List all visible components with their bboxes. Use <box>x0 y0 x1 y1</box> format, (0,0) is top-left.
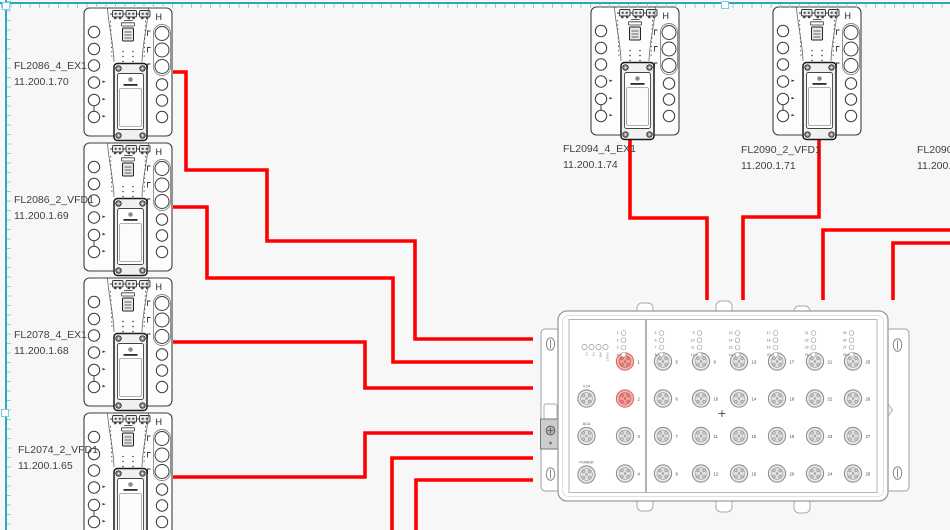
wire-1[interactable] <box>173 72 533 339</box>
diagram-canvas[interactable]: HFL2086_4_EX111.200.1.70HFL2086_2_VFD111… <box>0 0 950 530</box>
svg-text:H: H <box>845 11 852 21</box>
m12-port-19[interactable] <box>768 427 785 444</box>
port-led <box>621 345 626 350</box>
port-number: 22 <box>828 396 833 401</box>
m12-port-27[interactable] <box>844 427 861 444</box>
device-label-fl2078_4_ex1[interactable]: FL2078_4_EX111.200.1.68 <box>14 328 87 359</box>
device-fl2086_2_vfd1[interactable]: H <box>83 142 173 287</box>
port-led <box>811 331 816 336</box>
port-led <box>659 338 664 343</box>
port-number: 18 <box>790 396 795 401</box>
device-ip: 11.200.1.71 <box>741 160 796 172</box>
m12-port-12[interactable] <box>692 465 709 482</box>
center-marker: + <box>718 405 726 421</box>
m12-port-16[interactable] <box>730 465 747 482</box>
svg-text:H: H <box>156 282 163 292</box>
svg-text:H: H <box>156 417 163 427</box>
port-number: 20 <box>790 471 795 476</box>
device-artwork: H <box>83 7 173 147</box>
led-number: 13 <box>729 331 733 335</box>
led-number: 24 <box>805 353 809 357</box>
port-led <box>773 352 778 357</box>
m12-port-6[interactable] <box>654 390 671 407</box>
port-led <box>735 331 740 336</box>
m12-port-24[interactable] <box>806 465 823 482</box>
port-led <box>735 345 740 350</box>
port-number: 28 <box>866 471 871 476</box>
device-artwork: H <box>590 6 680 146</box>
led-number: 21 <box>805 331 809 335</box>
device-name: FL2086_2_VFD1 <box>14 194 94 206</box>
port-number: 27 <box>866 434 871 439</box>
svg-text:H: H <box>156 147 163 157</box>
device-ip: 11.200.1.69 <box>14 210 69 222</box>
aux-port-power[interactable] <box>578 466 595 483</box>
m12-port-20[interactable] <box>768 465 785 482</box>
port-number: 11 <box>714 434 719 439</box>
led-number: 28 <box>843 353 847 357</box>
device-ip: 11.200.1. <box>917 160 950 172</box>
led-number: 9 <box>693 331 695 335</box>
device-name: FL2090_4 <box>917 144 950 156</box>
device-artwork: H <box>772 6 862 146</box>
m12-port-4[interactable] <box>616 465 633 482</box>
status-led-p2 <box>589 344 594 349</box>
device-fl2078_4_ex1[interactable]: H <box>83 277 173 422</box>
port-led <box>621 338 626 343</box>
m12-port-2[interactable] <box>616 390 633 407</box>
wire-4[interactable] <box>173 433 533 477</box>
port-led <box>621 331 626 336</box>
led-number: 23 <box>805 346 809 350</box>
port-led <box>773 338 778 343</box>
port-number: 15 <box>752 434 757 439</box>
led-number: 1 <box>617 331 619 335</box>
device-artwork: H <box>83 142 173 282</box>
led-number: 2 <box>617 338 619 342</box>
device-ip: 11.200.1.65 <box>18 460 73 472</box>
aux-port-label: V.24 <box>583 385 590 389</box>
m12-port-23[interactable] <box>806 427 823 444</box>
port-led <box>697 338 702 343</box>
device-ip: 11.200.1.74 <box>563 159 618 171</box>
page-ruler-ticks-left <box>7 1 11 530</box>
led-number: 11 <box>691 346 695 350</box>
port-number: 23 <box>828 434 833 439</box>
device-label-fl2090_4[interactable]: FL2090_411.200.1. <box>917 143 950 174</box>
m12-port-3[interactable] <box>616 427 633 444</box>
port-led <box>849 345 854 350</box>
port-number: 10 <box>714 396 719 401</box>
svg-text:H: H <box>663 11 670 21</box>
status-led-p1 <box>582 344 587 349</box>
port-led <box>811 345 816 350</box>
port-led <box>811 352 816 357</box>
led-number: 8 <box>655 353 657 357</box>
status-led-rm <box>596 344 601 349</box>
port-led <box>849 338 854 343</box>
led-number: 19 <box>767 346 771 350</box>
port-led <box>773 331 778 336</box>
aux-port-v.24[interactable] <box>578 390 595 407</box>
m12-port-18[interactable] <box>768 390 785 407</box>
device-name: FL2074_2_VFD1 <box>18 444 98 456</box>
m12-port-8[interactable] <box>654 465 671 482</box>
led-number: 26 <box>843 338 847 342</box>
device-name: FL2086_4_EX1 <box>14 60 87 72</box>
m12-port-7[interactable] <box>654 427 671 444</box>
led-number: 25 <box>843 331 847 335</box>
aux-port-label: POWER <box>579 461 594 465</box>
port-number: 25 <box>866 359 871 364</box>
device-ip: 11.200.1.68 <box>14 345 69 357</box>
status-led-label: P2 <box>592 353 596 357</box>
device-name: FL2078_4_EX1 <box>14 329 87 341</box>
port-led <box>735 338 740 343</box>
port-number: 17 <box>790 359 795 364</box>
port-number: 21 <box>828 359 833 364</box>
aux-port-label: ACA <box>583 422 591 426</box>
port-led <box>697 345 702 350</box>
ethernet-switch[interactable]: P1P2RMFAULT11223344556677889910101111121… <box>520 288 920 530</box>
port-led <box>659 331 664 336</box>
device-artwork: H <box>83 277 173 417</box>
port-number: 26 <box>866 396 871 401</box>
device-label-fl2086_4_ex1[interactable]: FL2086_4_EX111.200.1.70 <box>14 59 87 90</box>
wire-7[interactable] <box>630 137 707 300</box>
led-number: 27 <box>843 346 847 350</box>
status-led-label: RM <box>599 353 603 358</box>
device-fl2090_2_vfd1[interactable]: H <box>772 6 862 151</box>
device-label-fl2094_4_ex1[interactable]: FL2094_4_EX111.200.1.74 <box>563 142 636 173</box>
m12-port-10[interactable] <box>692 390 709 407</box>
port-number: 19 <box>790 434 795 439</box>
m12-port-22[interactable] <box>806 390 823 407</box>
led-number: 20 <box>767 353 771 357</box>
led-number: 5 <box>655 331 657 335</box>
status-led-fault <box>603 344 608 349</box>
m12-port-11[interactable] <box>692 427 709 444</box>
m12-port-28[interactable] <box>844 465 861 482</box>
led-number: 18 <box>767 338 771 342</box>
led-number: 16 <box>729 353 733 357</box>
port-number: 16 <box>752 471 757 476</box>
device-fl2086_4_ex1[interactable]: H <box>83 7 173 152</box>
status-led-label: FAULT <box>606 353 610 362</box>
port-led <box>735 352 740 357</box>
device-label-fl2090_2_vfd1[interactable]: FL2090_2_VFD111.200.1.71 <box>741 143 821 174</box>
port-led <box>697 352 702 357</box>
port-led <box>773 345 778 350</box>
wire-6[interactable] <box>416 480 533 530</box>
led-number: 6 <box>655 338 657 342</box>
port-number: 14 <box>752 396 757 401</box>
selection-handle-1[interactable] <box>2 2 10 10</box>
device-fl2094_4_ex1[interactable]: H <box>590 6 680 151</box>
device-name: FL2094_4_EX1 <box>563 143 636 155</box>
port-led <box>621 352 626 357</box>
port-led <box>659 345 664 350</box>
m12-port-15[interactable] <box>730 427 747 444</box>
port-led <box>811 338 816 343</box>
led-number: 15 <box>729 346 733 350</box>
svg-text:H: H <box>156 12 163 22</box>
port-number: 24 <box>828 471 833 476</box>
led-number: 3 <box>617 346 619 350</box>
led-number: 7 <box>655 346 657 350</box>
led-number: 17 <box>767 331 771 335</box>
port-led <box>849 352 854 357</box>
wire-3[interactable] <box>173 342 533 388</box>
port-led <box>697 331 702 336</box>
page-ruler-ticks-top <box>1 4 950 8</box>
selection-handle-3[interactable] <box>1 409 9 417</box>
device-label-fl2086_2_vfd1[interactable]: FL2086_2_VFD111.200.1.69 <box>14 193 94 224</box>
port-number: 13 <box>752 359 757 364</box>
device-ip: 11.200.1.70 <box>14 76 69 88</box>
led-number: 14 <box>729 338 733 342</box>
aux-port-aca[interactable] <box>578 427 595 444</box>
m12-port-14[interactable] <box>730 390 747 407</box>
led-number: 22 <box>805 338 809 342</box>
device-label-fl2074_2_vfd1[interactable]: FL2074_2_VFD111.200.1.65 <box>18 443 98 474</box>
selection-handle-2[interactable] <box>721 1 729 9</box>
led-number: 10 <box>691 338 695 342</box>
led-number: 12 <box>691 353 695 357</box>
port-led <box>849 331 854 336</box>
wire-5[interactable] <box>392 458 533 530</box>
led-number: 4 <box>617 353 619 357</box>
device-name: FL2090_2_VFD1 <box>741 144 821 156</box>
port-number: 12 <box>714 471 719 476</box>
port-led <box>659 352 664 357</box>
m12-port-26[interactable] <box>844 390 861 407</box>
switch-artwork: P1P2RMFAULT11223344556677889910101111121… <box>520 288 920 530</box>
status-led-label: P1 <box>585 353 589 357</box>
